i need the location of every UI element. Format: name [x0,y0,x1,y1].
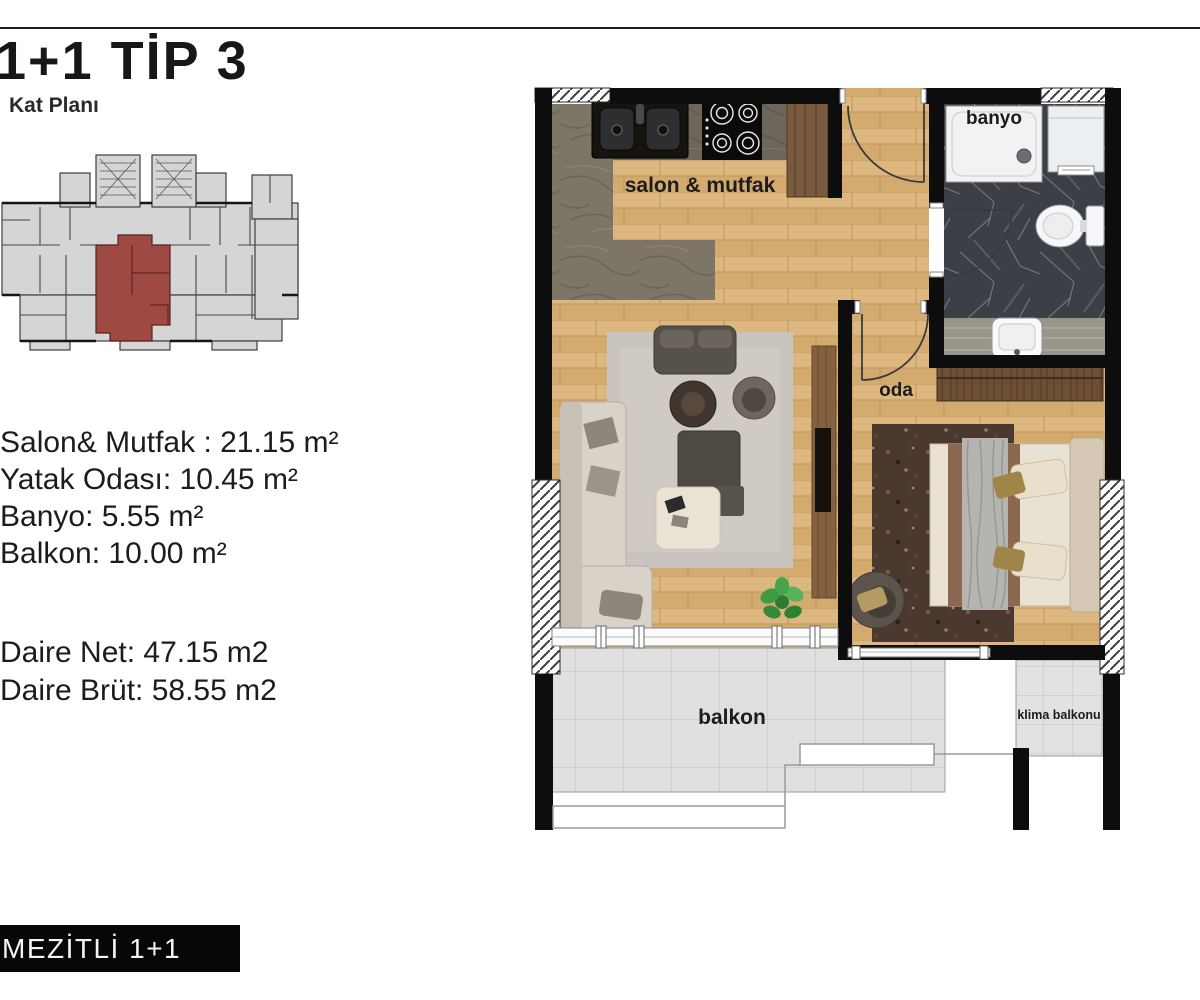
tv-screen [815,428,831,512]
coffee-table-light [656,487,720,549]
key-plan-highlight-unit [96,235,170,341]
living-balcony-window [552,626,838,648]
kitchen-cooktop [702,96,762,160]
totals: Daire Net: 47.15 m2 Daire Brüt: 58.55 m2 [0,634,277,710]
tv-unit [812,346,836,598]
label-balkon: balkon [698,706,766,729]
area-line-balkon: Balkon: 10.00 m² [0,535,339,572]
bedroom-dresser [937,365,1103,401]
area-line-yatak: Yatak Odası: 10.45 m² [0,461,339,498]
label-banyo: banyo [966,108,1022,129]
label-oda: oda [879,380,913,401]
entry-wardrobe [787,100,828,197]
project-banner: MEZİTLİ 1+1 [0,925,240,972]
washing-machine [1048,106,1104,175]
page-title: 1+1 TİP 3 [0,30,249,92]
total-brut: Daire Brüt: 58.55 m2 [0,672,277,710]
label-klima-balkonu: klima balkonu [1017,708,1100,722]
area-list: Salon& Mutfak : 21.15 m² Yatak Odası: 10… [0,424,339,572]
top-rule [0,27,1200,29]
armchair-bedroom [848,572,904,628]
sofa-main [654,326,736,374]
ottoman [678,431,740,491]
armchair-living [733,377,775,419]
area-line-salon: Salon& Mutfak : 21.15 m² [0,424,339,461]
page-subtitle: Kat Planı [9,94,99,118]
toilet [1036,205,1104,247]
label-salon-mutfak: salon & mutfak [625,174,776,197]
floor-plan: salon & mutfak banyo oda balkon klima ba… [528,80,1132,850]
project-banner-label: MEZİTLİ 1+1 [0,933,181,965]
bed [930,438,1104,612]
bedroom-balcony-window [848,646,990,659]
kitchen-sink [592,100,688,158]
area-line-banyo: Banyo: 5.55 m² [0,498,339,535]
coffee-table-round [670,381,716,427]
key-plan [0,145,330,360]
total-net: Daire Net: 47.15 m2 [0,634,277,672]
page: 1+1 TİP 3 Kat Planı [0,0,1200,1000]
